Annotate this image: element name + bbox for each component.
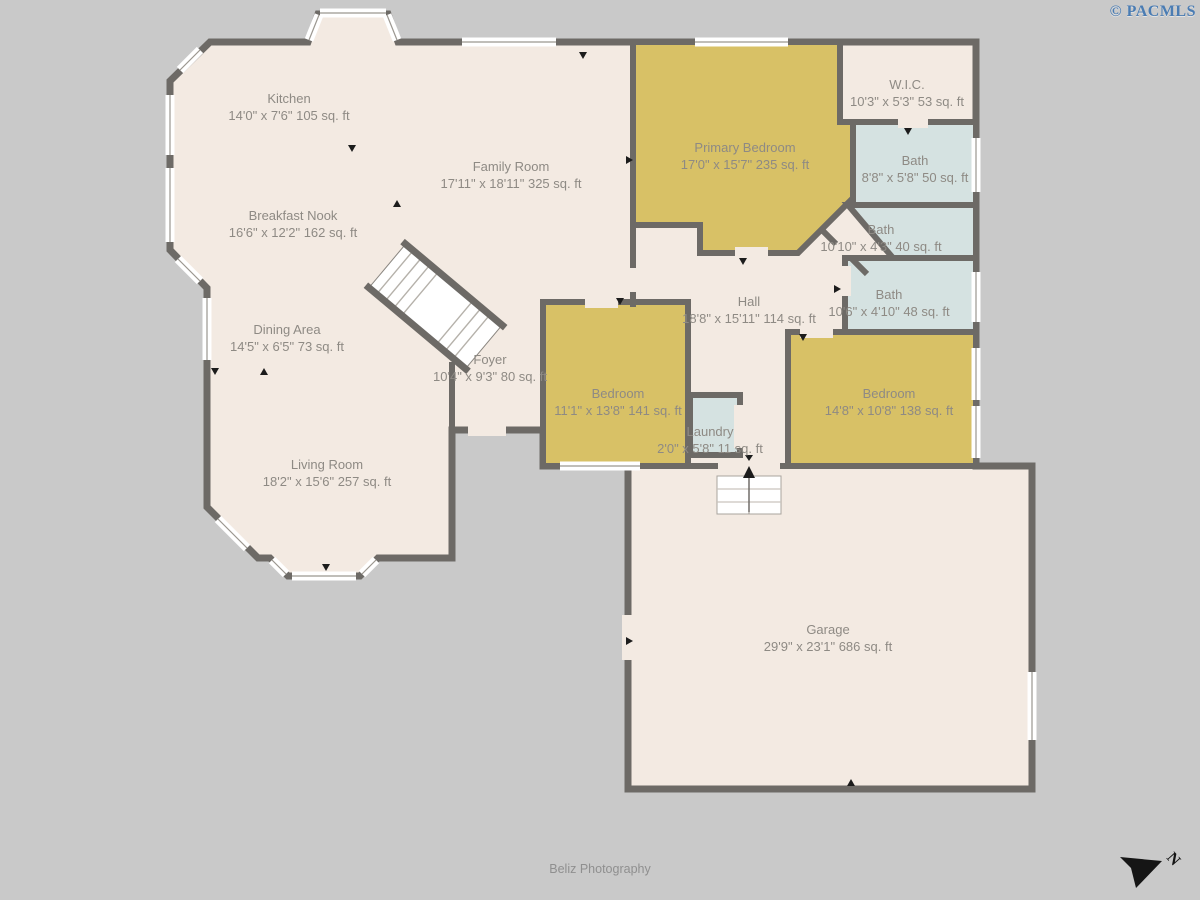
bath-1-area [853, 122, 976, 205]
north-arrow: N [1120, 849, 1184, 888]
photographer-credit: Beliz Photography [480, 862, 720, 876]
north-letter: N [1163, 849, 1184, 869]
floorplan-drawing: N [0, 0, 1200, 900]
bedroom-2-area [788, 332, 976, 466]
primary-bedroom-area [633, 42, 853, 253]
bedroom-1-area [543, 302, 688, 466]
laundry-area [690, 395, 740, 455]
pacmls-watermark: © PACMLS [1110, 3, 1196, 21]
floorplan-canvas: N Kitchen 14'0" x 7'6" 105 sq. ft Family… [0, 0, 1200, 900]
